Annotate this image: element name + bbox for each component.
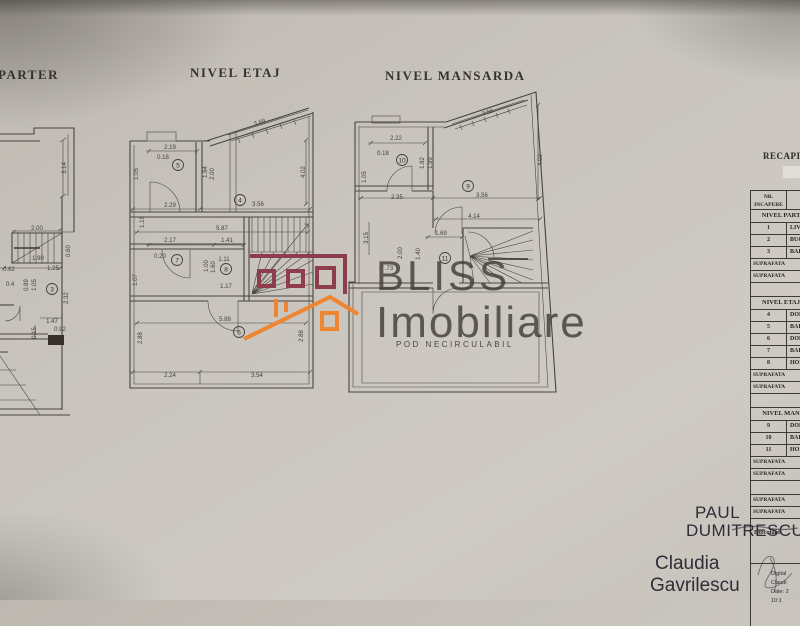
room-label-cell: DOR bbox=[787, 310, 800, 321]
dimension-label: 3.15 bbox=[364, 232, 370, 244]
dimension-label: 4.14 bbox=[468, 214, 480, 220]
room-label-cell: BAI bbox=[787, 346, 800, 357]
mansarda-title: NIVEL MANSARDA bbox=[385, 68, 526, 84]
dimension-label: 1.47 bbox=[46, 319, 58, 325]
dimension-label: 2.00 bbox=[210, 168, 216, 180]
room-label-cell: BAI bbox=[787, 322, 800, 333]
room-number-cell: 9 bbox=[751, 421, 787, 432]
dimension-label: 0.18 bbox=[377, 151, 389, 157]
room-number-cell: 8 bbox=[751, 358, 787, 369]
dimension-label: 2.32 bbox=[64, 292, 70, 304]
room-number: 3 bbox=[50, 286, 54, 293]
recap-row-room: 3BAI bbox=[751, 247, 800, 259]
room-label-cell: LIV bbox=[787, 223, 800, 234]
dimension-label: 0.4 bbox=[6, 282, 15, 288]
etaj-title: NIVEL ETAJ bbox=[190, 65, 281, 81]
recap-row-room: 4DOR bbox=[751, 310, 800, 322]
dimension-label: 1.15 bbox=[140, 216, 146, 228]
room-number: 7 bbox=[175, 257, 179, 264]
dimension-label: 0.15 bbox=[32, 327, 38, 339]
recap-row-room: 7BAI bbox=[751, 346, 800, 358]
dimension-label: 2.22 bbox=[390, 136, 402, 142]
dimension-label: 0.89 bbox=[24, 279, 30, 291]
dimension-label: 1.84 bbox=[203, 166, 209, 178]
room-label-cell: BUC bbox=[787, 235, 800, 246]
room-number-cell: 5 bbox=[751, 322, 787, 333]
recap-row-suprafata: SUPRAFATA bbox=[751, 370, 800, 382]
dimension-label: 1.05 bbox=[32, 279, 38, 291]
signature-name-gavrilescu: Gavrilescu bbox=[650, 575, 740, 597]
dimension-label: 2.19 bbox=[164, 145, 176, 151]
dimension-label: 1.05 bbox=[362, 171, 368, 183]
dimension-label: 2.24 bbox=[164, 373, 176, 379]
dimension-label: 2.29 bbox=[164, 203, 176, 209]
room-number: 4 bbox=[238, 197, 242, 204]
room-number-cell: 7 bbox=[751, 346, 787, 357]
recap-row-suprafata: SUPRAFATA bbox=[751, 507, 800, 519]
recap-row-spacer bbox=[751, 481, 800, 495]
dimension-label: 1.90 bbox=[32, 256, 44, 262]
signature-name-claudia: Claudia bbox=[655, 553, 719, 575]
room-number: 9 bbox=[466, 183, 470, 190]
photo-shadow-top-edge bbox=[0, 0, 800, 16]
room-label-cell: DOR bbox=[787, 334, 800, 345]
recap-col1-header: NR. INCAPERE bbox=[751, 191, 787, 209]
room-number-cell: 4 bbox=[751, 310, 787, 321]
recap-row-spacer bbox=[751, 394, 800, 408]
room-label-cell: HOL bbox=[787, 358, 800, 369]
recap-row-suprafata: SUPRAFATA bbox=[751, 457, 800, 469]
recap-row-room: 1LIV bbox=[751, 223, 800, 235]
dimension-label: 1.41 bbox=[221, 238, 233, 244]
room-number: 8 bbox=[224, 266, 228, 273]
room-number-cell: 6 bbox=[751, 334, 787, 345]
dimension-label: 2.00 bbox=[31, 226, 43, 232]
room-label-cell: BAI bbox=[787, 433, 800, 444]
whiteout-patch bbox=[783, 166, 800, 178]
recap-row-room: 5BAI bbox=[751, 322, 800, 334]
mansarda-floor-plan: POD NECIRCULABIL 2.220.183.564.021.821.9… bbox=[340, 85, 575, 405]
bliss-imobiliare-logo bbox=[240, 245, 370, 360]
room-label-cell: HOL bbox=[787, 445, 800, 456]
dimension-label: 1.99 bbox=[428, 157, 434, 169]
logo-roof-outline-orange bbox=[244, 297, 358, 339]
recap-table-rows: NIVEL PART1LIV2BUC3BAISUPRAFATASUPRAFATA… bbox=[751, 210, 800, 519]
dimension-label: 1.60 bbox=[211, 261, 217, 273]
room-number-cell: 2 bbox=[751, 235, 787, 246]
recap-row-room: 10BAI bbox=[751, 433, 800, 445]
dimension-label: 1.05 bbox=[134, 168, 140, 180]
recap-row-room: 9DOR bbox=[751, 421, 800, 433]
dimension-label: 3.56 bbox=[476, 193, 488, 199]
signature-scribble bbox=[730, 520, 800, 600]
recap-row-room: 11HOL bbox=[751, 445, 800, 457]
dimension-label: 0.60 bbox=[66, 245, 72, 257]
recap-row-room: 8HOL bbox=[751, 358, 800, 370]
recap-row-suprafata: SUPRAFATA bbox=[751, 271, 800, 283]
photographed-floor-plan-document: { "titles": { "parter": "PARTER", "etaj"… bbox=[0, 0, 800, 600]
room-number: 10 bbox=[398, 157, 406, 164]
recap-row-suprafata: SUPRAFATA bbox=[751, 495, 800, 507]
dimension-label: 1.07 bbox=[133, 274, 139, 286]
dimension-label: 1.82 bbox=[420, 157, 426, 169]
dimension-label: 1.17 bbox=[220, 284, 232, 290]
room-number-cell: 3 bbox=[751, 247, 787, 258]
recap-table-title: RECAPITU bbox=[763, 151, 800, 161]
dimension-label: 2.17 bbox=[164, 238, 176, 244]
dimension-label: 3.54 bbox=[251, 373, 263, 379]
dimension-label: 0.20 bbox=[154, 254, 166, 260]
room-number: 5 bbox=[176, 162, 180, 169]
room-label-cell: DOR bbox=[787, 421, 800, 432]
dimension-label: 3.69 bbox=[253, 118, 267, 127]
dimension-label: 2.88 bbox=[138, 332, 144, 344]
room-number-cell: 11 bbox=[751, 445, 787, 456]
dimension-label: 4.02 bbox=[538, 154, 544, 166]
dimension-label: 1.00 bbox=[204, 260, 210, 272]
recap-row-room: 6DOR bbox=[751, 334, 800, 346]
room-number-cell: 1 bbox=[751, 223, 787, 234]
dimension-label: 0.92 bbox=[54, 327, 66, 333]
dimension-label: 0.62 bbox=[3, 267, 15, 273]
room-label-cell: BAI bbox=[787, 247, 800, 258]
recap-row-section: NIVEL PART bbox=[751, 210, 800, 223]
dimension-label: 2.35 bbox=[391, 195, 403, 201]
dimension-label: 1.25 bbox=[47, 266, 59, 272]
recap-row-suprafata: SUPRAFATA bbox=[751, 259, 800, 271]
recap-row-spacer bbox=[751, 283, 800, 297]
recap-row-suprafata: SUPRAFATA bbox=[751, 469, 800, 481]
dimension-label: 3.14 bbox=[62, 162, 68, 174]
dimension-label: 1.69 bbox=[435, 231, 447, 237]
recap-row-room: 2BUC bbox=[751, 235, 800, 247]
dimension-label: 3.56 bbox=[252, 202, 264, 208]
dimension-label: 0.18 bbox=[157, 155, 169, 161]
recap-row-section: NIVEL ETAJ bbox=[751, 297, 800, 310]
watermark-imobiliare: Imobiliare bbox=[376, 298, 587, 348]
dimension-label: 5.88 bbox=[219, 317, 231, 323]
dimension-label: 1.11 bbox=[218, 257, 230, 263]
recap-row-suprafata: SUPRAFATA bbox=[751, 382, 800, 394]
recap-table-header: NR. INCAPERE bbox=[751, 191, 800, 210]
dimension-label: 5.87 bbox=[216, 226, 228, 232]
recap-row-section: NIVEL MAN bbox=[751, 408, 800, 421]
dimension-label: 4.02 bbox=[301, 166, 307, 178]
room-number-cell: 10 bbox=[751, 433, 787, 444]
watermark-bliss: BLISS bbox=[376, 252, 510, 300]
parter-floor-plan: 3.142.001.900.600.621.250.891.050.42.321… bbox=[0, 60, 95, 425]
